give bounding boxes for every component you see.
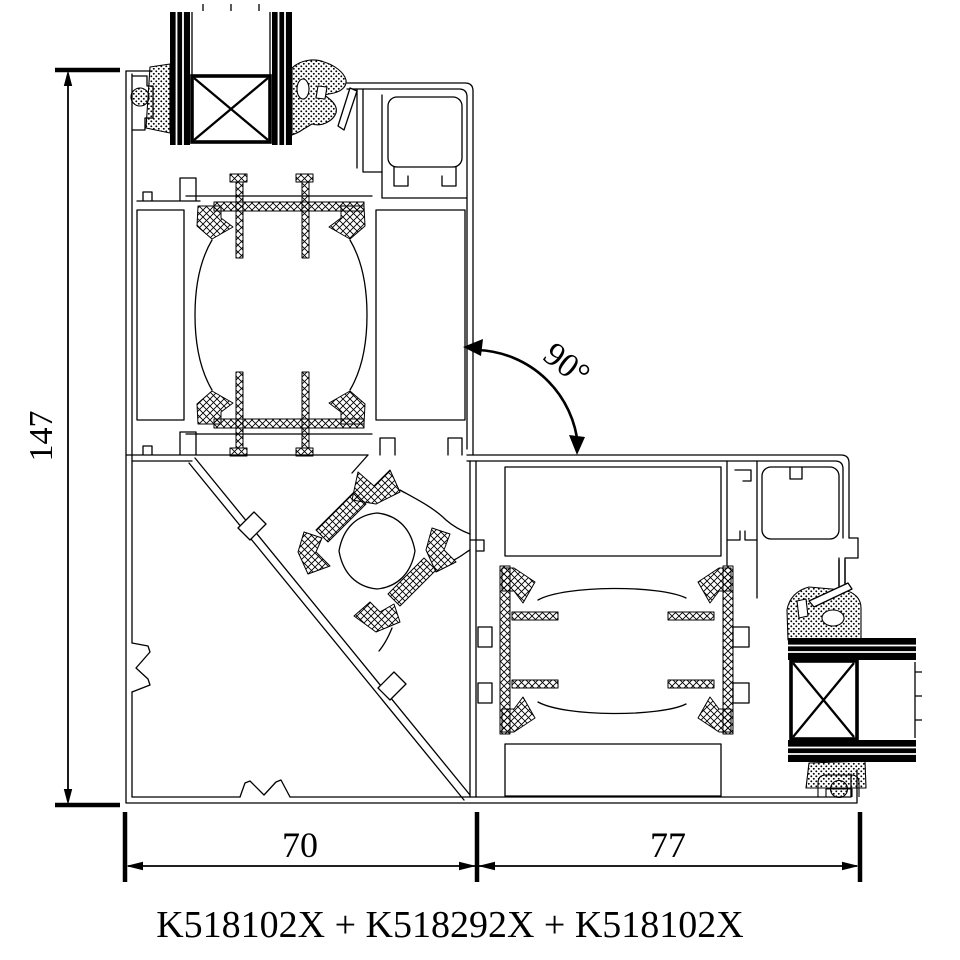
arc-arrow-down [569,435,585,455]
gasket-bulb-top-left [131,88,149,106]
miter-diagonal [189,458,470,800]
glazing-unit-top [170,4,292,145]
technical-drawing-page: 147 70 77 90° K518102X + K518292X + K518… [0,0,960,960]
dim-height-label: 147 [23,411,60,462]
profile-section-drawing: 147 70 77 90° K518102X + K518292X + K518… [0,0,960,960]
chamber-bottom-horizontal [505,744,721,796]
glazing-unit-right [788,638,922,762]
arrow-down [64,789,72,805]
angle-label: 90° [536,335,596,393]
gasket-bulb-bottom-right [831,781,848,798]
sash-tongue-top [338,88,357,130]
chamber-right [376,210,465,420]
dimension-height: 147 [23,70,120,805]
t-slot-hooks-top [137,178,200,201]
gasket-top-left [146,64,170,133]
wall-break-notch-bottom [240,780,290,797]
chamber-end-horizontal [762,467,839,539]
chamber-top-horizontal [505,467,721,556]
corner-connector-tube [339,513,415,589]
profile-codes-caption: K518102X + K518292X + K518102X [156,904,744,946]
dim-width-left-label: 70 [282,825,318,865]
angle-annotation: 90° [463,335,597,455]
dim-width-right-label: 77 [650,825,686,865]
dimension-widths: 70 77 [125,812,860,882]
wall-break-notch-left [132,643,150,692]
arrow-up [64,70,72,86]
t-slot-hooks-bottom [126,432,462,461]
chamber-left [137,210,184,420]
